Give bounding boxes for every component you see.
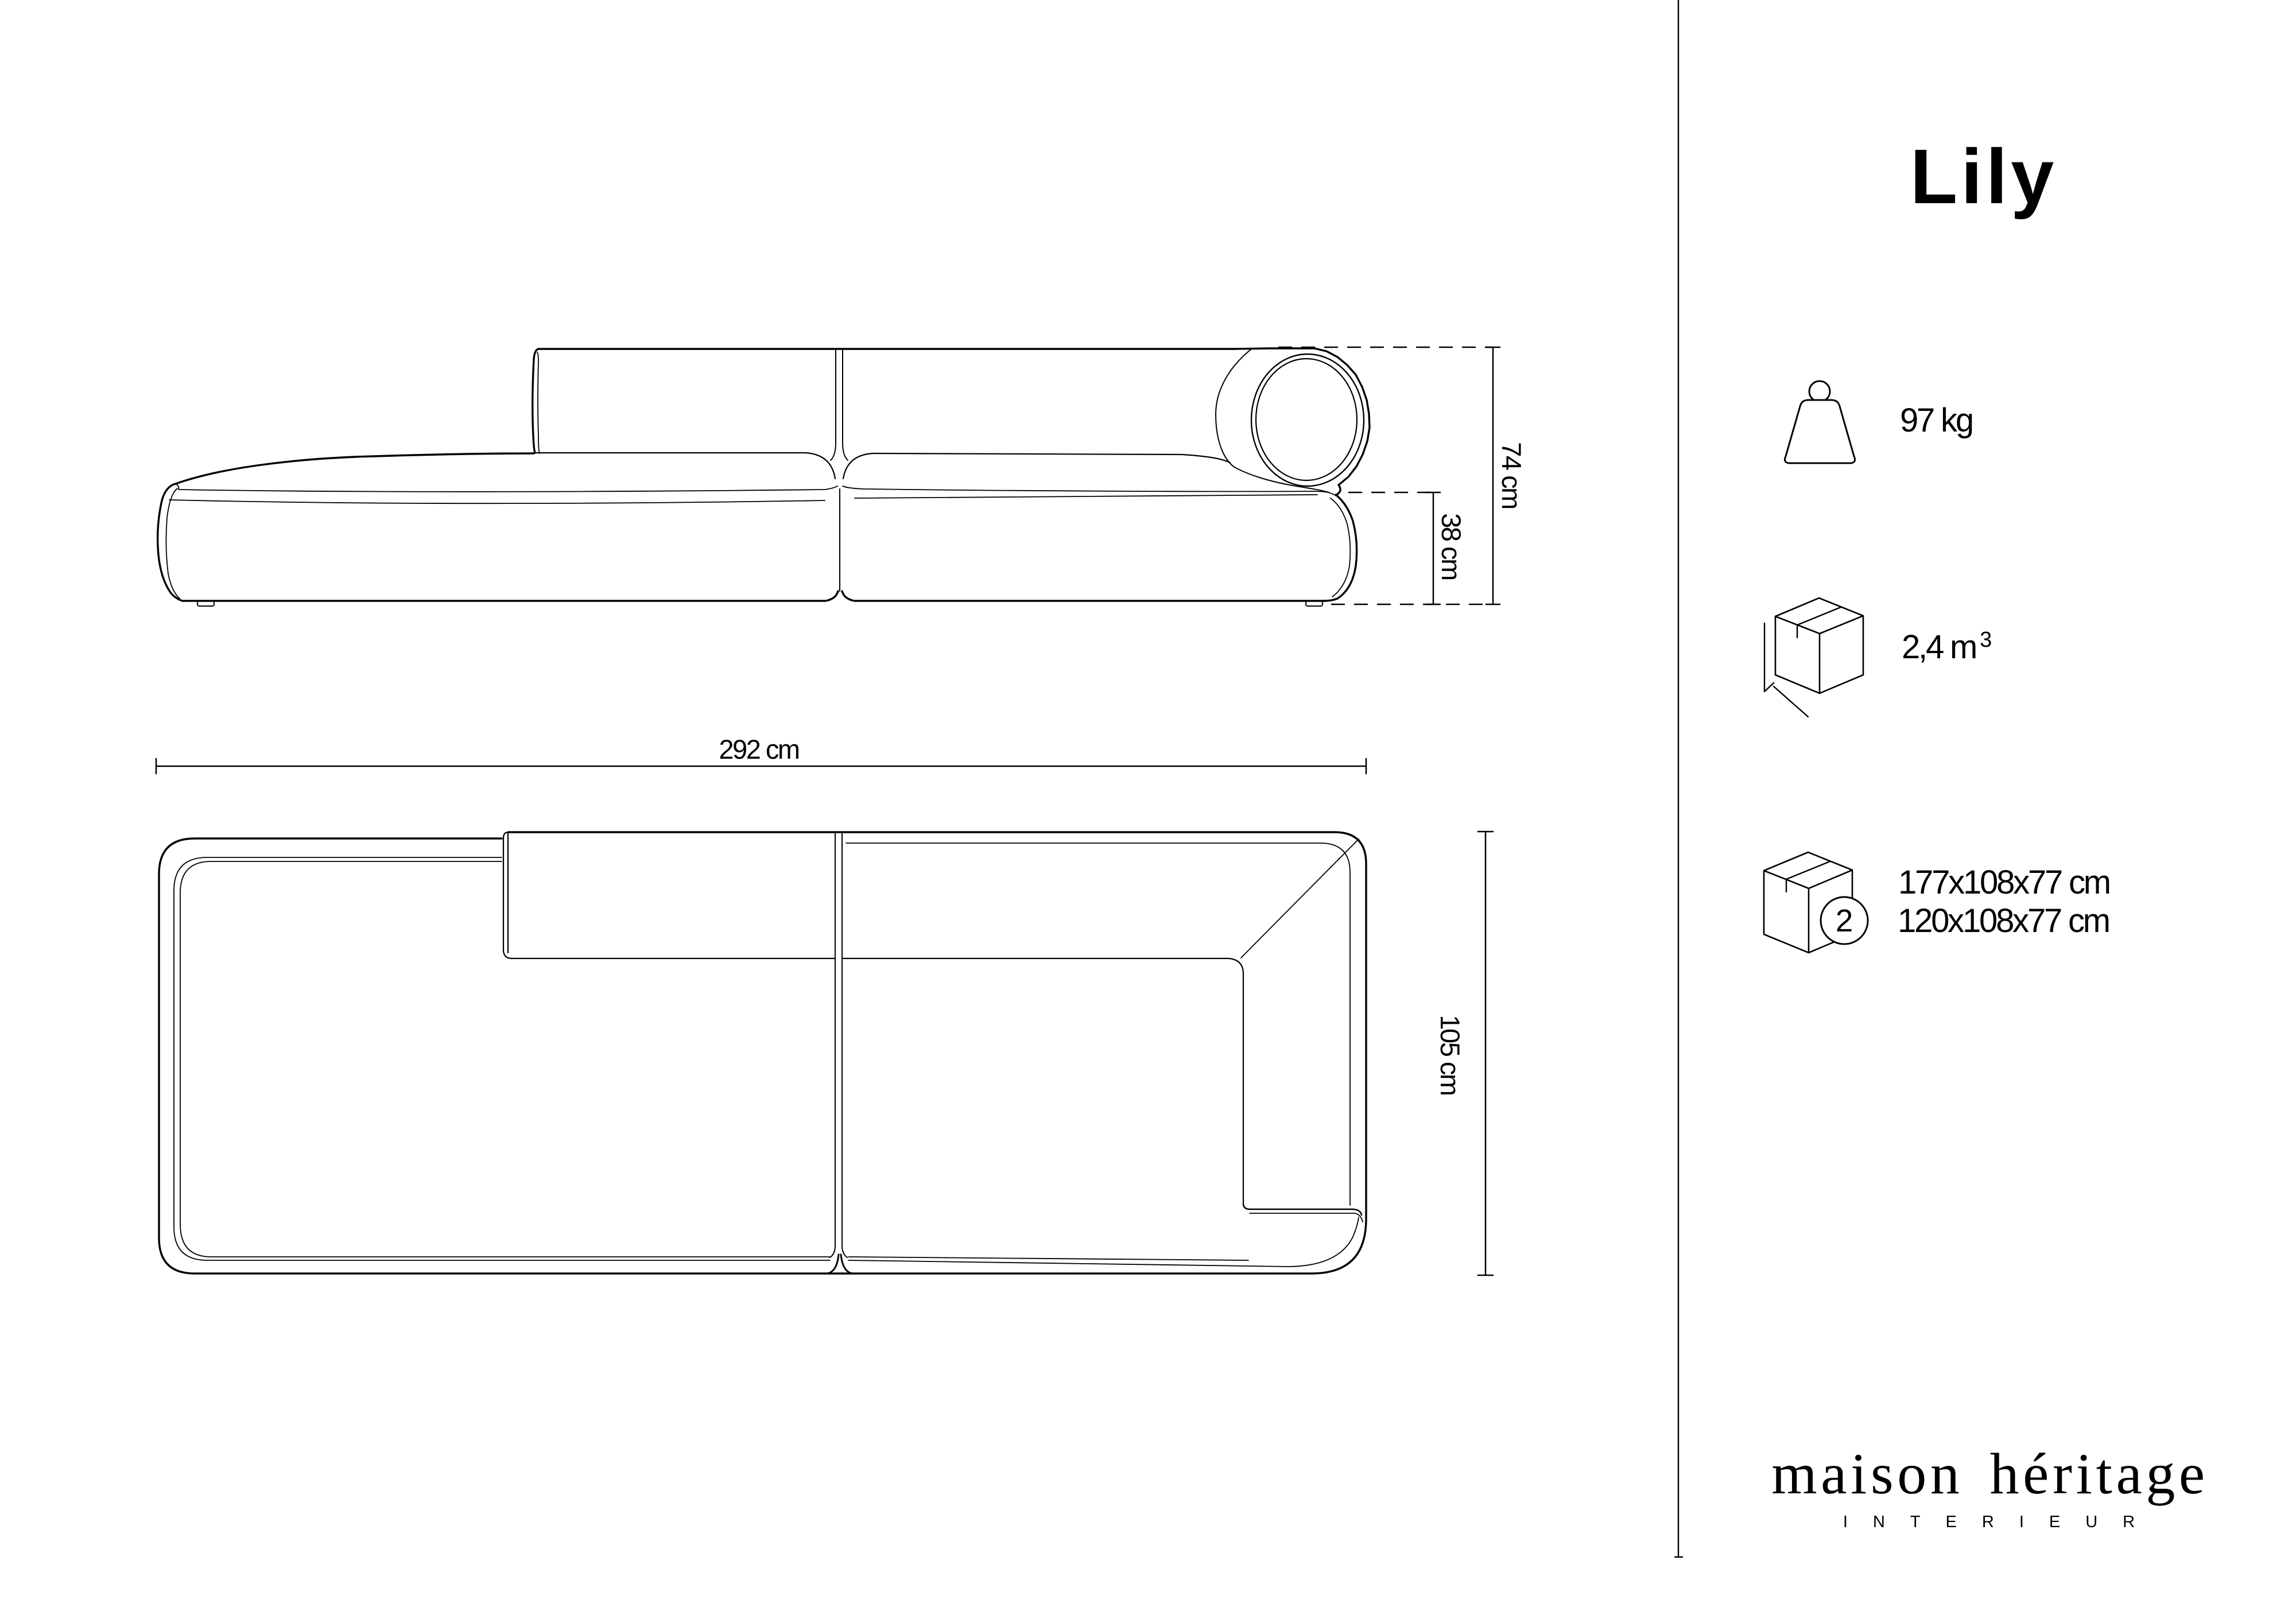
svg-text:292 cm: 292 cm — [719, 734, 798, 764]
svg-text:Lily: Lily — [1910, 133, 2058, 220]
svg-text:38 cm: 38 cm — [1436, 513, 1467, 580]
svg-text:INTERIEUR: INTERIEUR — [1843, 1513, 2160, 1531]
svg-text:105 cm: 105 cm — [1435, 1015, 1465, 1094]
svg-text:74 cm: 74 cm — [1496, 442, 1527, 508]
svg-text:120x108x77 cm: 120x108x77 cm — [1898, 902, 2109, 939]
svg-text:2: 2 — [1836, 903, 1853, 938]
svg-text:177x108x77 cm: 177x108x77 cm — [1898, 864, 2109, 901]
svg-text:maison héritage: maison héritage — [1771, 1442, 2209, 1506]
svg-text:97 kg: 97 kg — [1900, 402, 1972, 439]
